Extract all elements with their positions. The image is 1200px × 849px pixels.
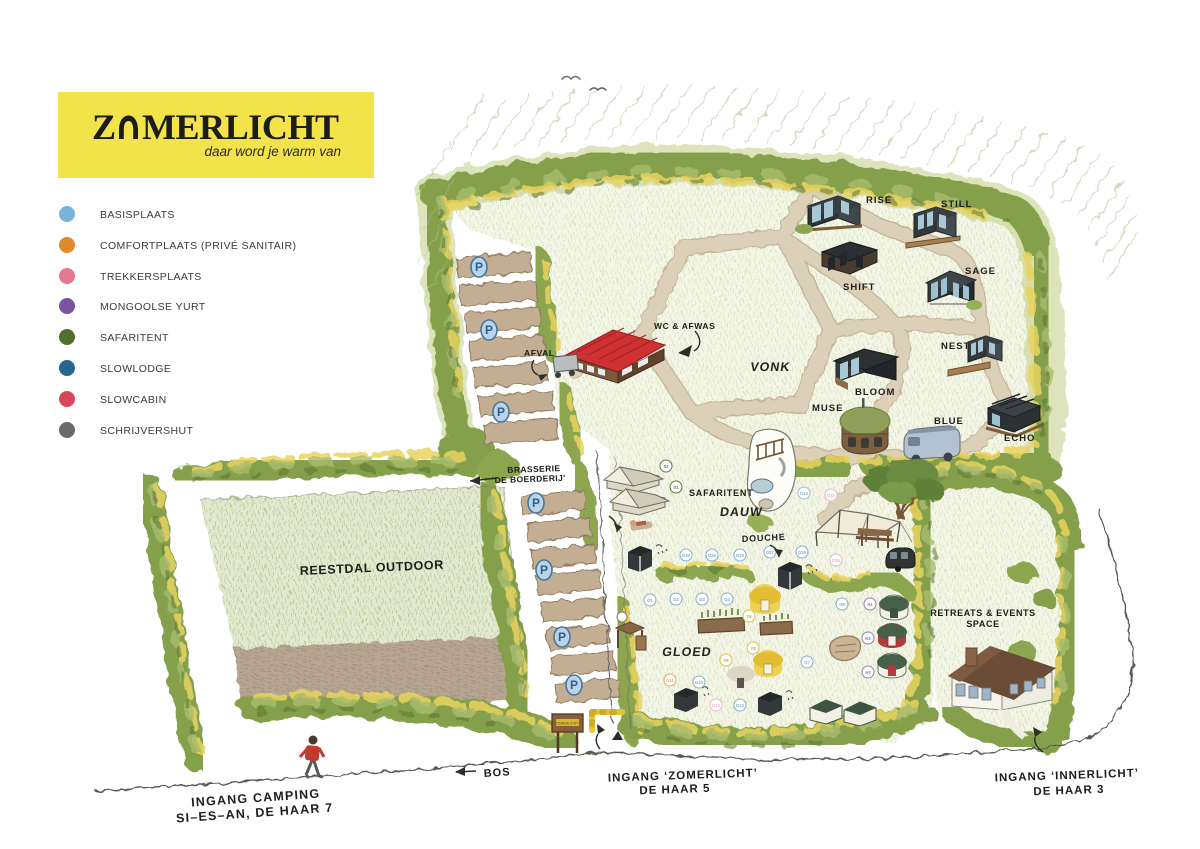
svg-text:S1: S1: [673, 485, 679, 490]
svg-text:H2: H2: [865, 636, 871, 641]
svg-text:P: P: [485, 323, 493, 337]
svg-text:Y5: Y5: [746, 614, 752, 619]
svg-text:G10: G10: [695, 680, 704, 685]
svg-text:Y9: Y9: [723, 658, 729, 663]
svg-text:D26: D26: [798, 550, 806, 555]
svg-text:COMFORTPLAATS (PRIVÉ SANITAIR): COMFORTPLAATS (PRIVÉ SANITAIR): [100, 239, 296, 252]
svg-text:SLOWCABIN: SLOWCABIN: [100, 394, 167, 406]
svg-text:RISE: RISE: [866, 195, 892, 206]
svg-text:BLOOM: BLOOM: [855, 387, 895, 398]
svg-text:P: P: [497, 405, 505, 419]
svg-text:D27: D27: [766, 550, 774, 555]
svg-text:BOS: BOS: [483, 766, 511, 780]
svg-text:VONK: VONK: [749, 360, 791, 374]
svg-text:G3: G3: [699, 597, 705, 602]
svg-text:NEST: NEST: [941, 341, 970, 352]
svg-text:DE HAAR 3: DE HAAR 3: [1033, 784, 1104, 798]
svg-text:D14: D14: [800, 491, 808, 496]
svg-text:BASISPLAATS: BASISPLAATS: [100, 209, 175, 221]
svg-text:STILL: STILL: [941, 199, 972, 210]
svg-text:MUSE: MUSE: [812, 403, 843, 414]
svg-text:P: P: [540, 563, 548, 577]
svg-text:daar word je warm van: daar word je warm van: [204, 144, 341, 159]
svg-text:G4: G4: [724, 597, 730, 602]
svg-text:G13: G13: [712, 703, 721, 708]
svg-text:D30: D30: [682, 553, 690, 558]
svg-text:D15: D15: [827, 493, 835, 498]
svg-text:SAFARITENT: SAFARITENT: [689, 488, 754, 498]
svg-text:D29: D29: [708, 553, 716, 558]
svg-text:RETREATS & EVENTS: RETREATS & EVENTS: [930, 608, 1036, 618]
svg-text:SHIFT: SHIFT: [843, 282, 875, 293]
svg-text:D28: D28: [736, 553, 744, 558]
svg-text:G11: G11: [666, 678, 674, 683]
svg-text:DE HAAR 5: DE HAAR 5: [639, 783, 710, 797]
svg-text:BLUE: BLUE: [934, 416, 964, 427]
svg-text:SAGE: SAGE: [965, 266, 996, 277]
svg-text:P: P: [558, 630, 566, 644]
svg-text:H3: H3: [865, 670, 871, 675]
svg-text:Y8: Y8: [750, 646, 756, 651]
svg-text:TREKKERSPLAATS: TREKKERSPLAATS: [100, 271, 202, 283]
svg-text:P: P: [532, 496, 540, 510]
svg-text:AFVAL: AFVAL: [524, 348, 555, 358]
svg-text:DAUW: DAUW: [719, 505, 764, 519]
svg-text:WC & AFWAS: WC & AFWAS: [654, 321, 715, 331]
svg-text:G7: G7: [804, 660, 810, 665]
svg-text:G2: G2: [673, 597, 679, 602]
svg-text:MERLICHT: MERLICHT: [142, 107, 339, 147]
svg-text:Z: Z: [92, 107, 116, 147]
svg-text:H1: H1: [867, 602, 873, 607]
svg-text:G12: G12: [736, 703, 745, 708]
svg-text:P: P: [570, 678, 578, 692]
svg-text:G6: G6: [839, 602, 845, 607]
svg-text:P: P: [475, 260, 483, 274]
svg-text:SLOWLODGE: SLOWLODGE: [100, 363, 171, 375]
svg-text:MONGOOLSE YURT: MONGOOLSE YURT: [100, 301, 206, 313]
svg-text:SAFARITENT: SAFARITENT: [100, 332, 169, 344]
svg-text:SCHRIJVERSHUT: SCHRIJVERSHUT: [100, 425, 193, 437]
svg-text:G1: G1: [647, 598, 653, 603]
svg-text:ECHO: ECHO: [1004, 433, 1035, 444]
svg-text:D25: D25: [832, 558, 840, 563]
svg-text:SPACE: SPACE: [966, 619, 999, 629]
svg-text:S2: S2: [663, 464, 669, 469]
svg-text:ZOMERLICHT: ZOMERLICHT: [556, 722, 579, 726]
svg-text:GLOED: GLOED: [661, 645, 712, 659]
